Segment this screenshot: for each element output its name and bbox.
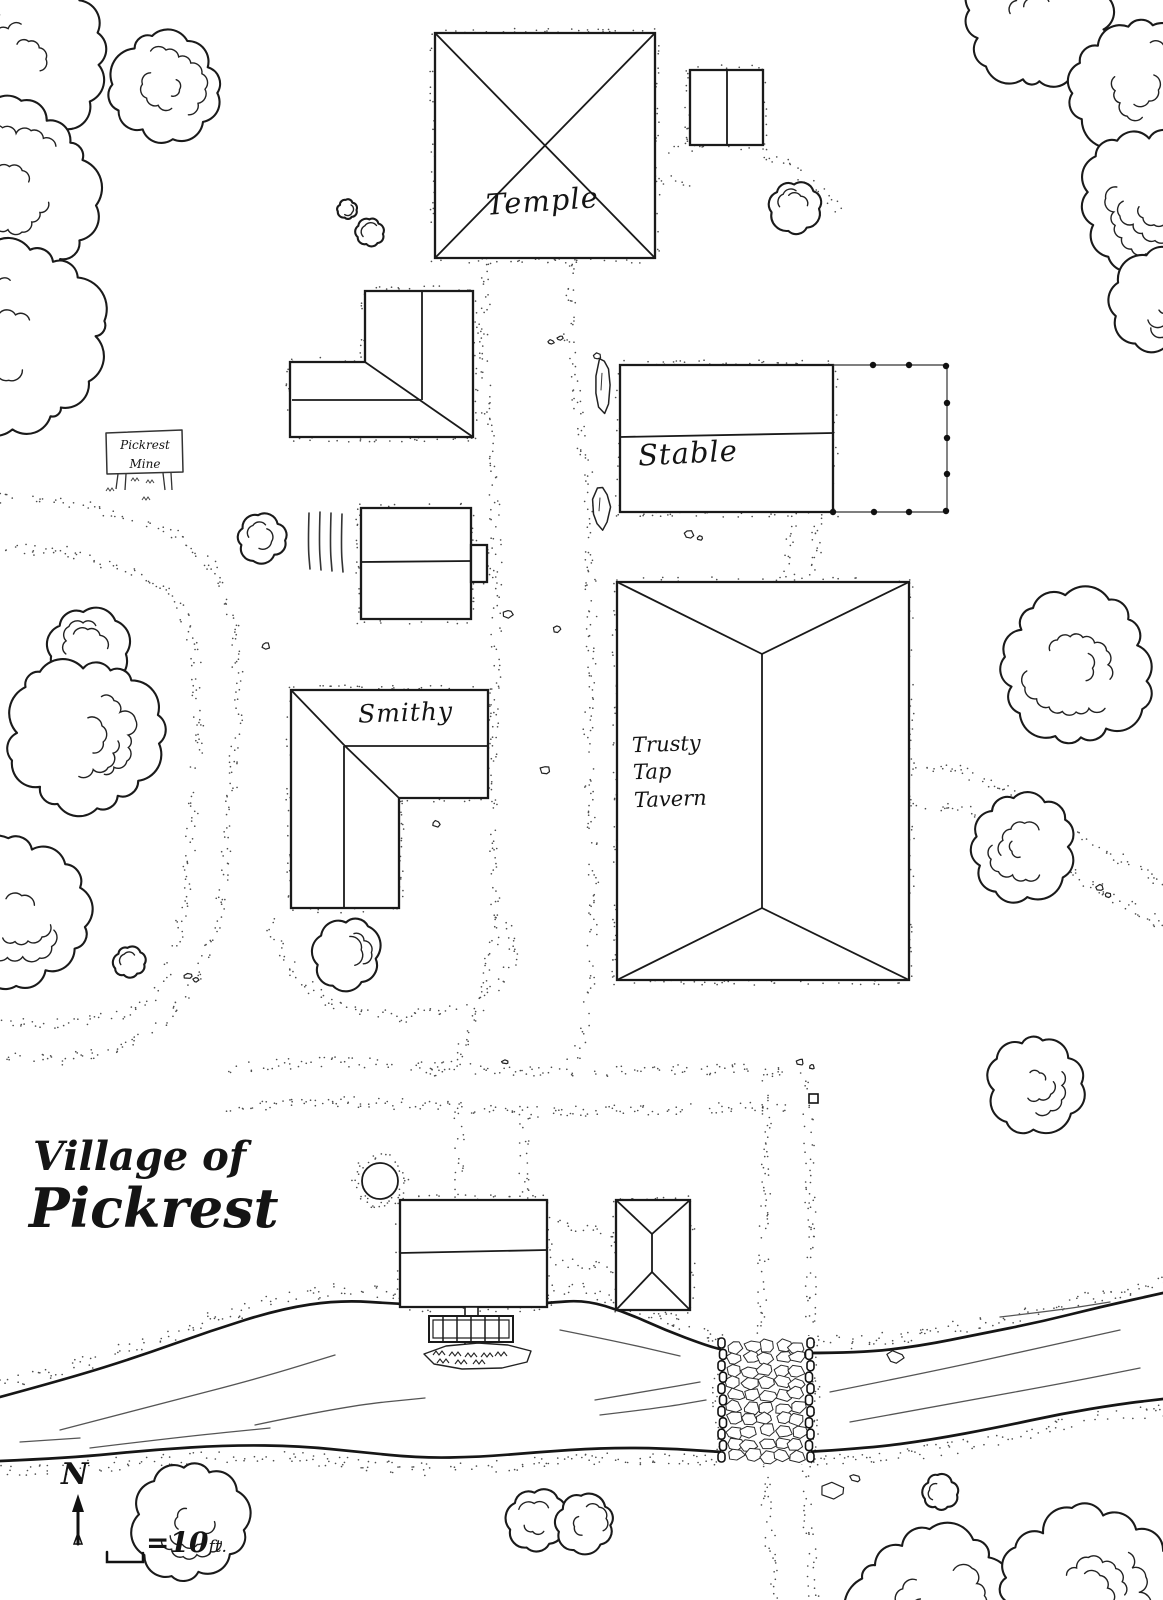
building-mill — [400, 1200, 547, 1307]
fence-post — [944, 435, 950, 441]
stable-fence — [830, 362, 950, 515]
mine-sign-line1: Pickrest — [120, 438, 170, 452]
dirt-path-stipple — [801, 1073, 817, 1336]
building-house-northwest — [290, 291, 473, 437]
dirt-path-stipple — [519, 1107, 530, 1198]
dirt-path-stipple — [757, 1069, 772, 1340]
bridge-chain-link — [807, 1452, 814, 1462]
scale-unit: ft. — [208, 1537, 227, 1557]
grass-tuft — [106, 488, 114, 491]
building-river-house — [616, 1200, 690, 1310]
rock — [810, 1065, 815, 1069]
water-splash — [424, 1343, 531, 1369]
sign-leg — [171, 473, 172, 490]
building-house-middle-walls — [361, 508, 471, 619]
bridge-chain-link — [807, 1429, 814, 1439]
building-mill-walls — [400, 1200, 547, 1307]
map-title-line2: Pickrest — [29, 1181, 279, 1235]
river-current-line — [595, 1382, 700, 1400]
river-bank-stipple — [801, 1277, 1163, 1348]
bridge-chain-link — [718, 1338, 725, 1348]
river-bank-stipple — [809, 1405, 1163, 1466]
river-bank-line — [0, 1301, 723, 1397]
rock — [850, 1475, 860, 1482]
building-house-middle — [361, 508, 471, 619]
bridge-chain-link — [720, 1441, 727, 1451]
bridge-chain-link — [806, 1349, 813, 1359]
map-scale — [107, 1552, 143, 1562]
river-current-line — [600, 1400, 706, 1415]
wheel-axle — [465, 1307, 478, 1316]
bridge-chain-link — [720, 1395, 727, 1405]
tree-canopy — [131, 1463, 250, 1581]
north-arrow-head — [72, 1494, 84, 1512]
stone-bridge — [718, 1336, 814, 1464]
map-canvas — [0, 0, 1163, 1600]
bridge-chain-link — [718, 1384, 725, 1394]
bridge-cobblestone — [760, 1339, 773, 1352]
tree-canopy — [113, 946, 146, 977]
tree-canopy — [238, 513, 287, 563]
building-house-northwest-walls — [290, 291, 473, 437]
building-temple — [435, 33, 655, 258]
label-tavern-line2: Tap — [633, 757, 707, 787]
dirt-path-stipple — [267, 919, 517, 1022]
river-current-line — [60, 1355, 335, 1430]
rock — [262, 643, 269, 649]
bridge-chain-link — [720, 1349, 727, 1359]
building-river-house-walls — [616, 1200, 690, 1310]
bridge-cobblestone — [760, 1439, 777, 1449]
rock — [1105, 893, 1110, 898]
rock — [796, 1059, 803, 1065]
garden-rows — [309, 512, 344, 572]
tree-canopy — [312, 919, 381, 992]
bridge-chain-link — [720, 1418, 727, 1428]
label-smithy: Smithy — [358, 696, 454, 728]
river-current-line — [560, 1330, 680, 1356]
bridge-chain-link — [807, 1338, 814, 1348]
dirt-path-stipple — [564, 264, 599, 1059]
tree-canopy — [844, 1523, 1011, 1600]
river-bank-line — [806, 1399, 1163, 1452]
bridge-chain-link — [806, 1372, 813, 1382]
garden-row-line — [342, 514, 344, 572]
label-tavern: Trusty Tap Tavern — [632, 730, 708, 814]
river-current-line — [255, 1398, 425, 1425]
tree-canopy — [922, 1474, 958, 1510]
mine-sign-line2: Mine — [130, 457, 161, 471]
rock — [684, 531, 693, 538]
tree-canopy — [987, 1037, 1085, 1134]
standing-stones — [593, 359, 611, 530]
bridge-chain-link — [807, 1406, 814, 1416]
dirt-path-stipple — [802, 1464, 819, 1597]
bridge-chain-link — [807, 1384, 814, 1394]
fence-post — [944, 471, 950, 477]
fence-post — [906, 509, 912, 515]
dirt-path-stipple — [761, 1464, 777, 1598]
garden-row-line — [331, 513, 333, 571]
bridge-chain-link — [806, 1395, 813, 1405]
tree-canopy — [1000, 1503, 1163, 1600]
bridge-chain-link — [718, 1452, 725, 1462]
village-map: Temple Stable Smithy Trusty Tap Tavern P… — [0, 0, 1163, 1600]
building-house-middle-roofline — [361, 561, 471, 562]
fence-post — [871, 509, 877, 515]
river-current-line — [850, 1368, 1140, 1422]
garden-row-line — [320, 512, 322, 570]
tree-canopy — [108, 29, 220, 143]
bridge-chain-link — [807, 1361, 814, 1371]
building-house-middle-annex — [471, 545, 487, 582]
fence-post — [943, 508, 949, 514]
label-tavern-line3: Tavern — [633, 784, 707, 814]
sign-leg — [163, 473, 165, 490]
compass-north-label: N — [61, 1457, 88, 1492]
standing-stone — [596, 359, 610, 414]
grass-tuft — [146, 480, 154, 483]
dirt-path-stipple — [454, 1112, 464, 1200]
square-marker — [809, 1094, 818, 1103]
tree-canopy — [0, 835, 93, 989]
tree-canopy — [555, 1494, 613, 1555]
river-current-line — [20, 1438, 80, 1442]
scale-bar — [107, 1552, 143, 1562]
bridge-chain-link — [718, 1429, 725, 1439]
label-stable: Stable — [637, 433, 738, 472]
map-title-line1: Village of — [33, 1137, 279, 1177]
rock — [548, 340, 554, 344]
river-current-line — [830, 1330, 1120, 1392]
fence-post — [906, 362, 912, 368]
tree-canopy — [1000, 586, 1151, 743]
sign-leg — [116, 474, 118, 489]
scale-label: =10ft. — [146, 1526, 227, 1559]
round-yard-feature — [362, 1163, 398, 1199]
rock — [697, 536, 702, 541]
rock — [593, 353, 600, 359]
map-title: Village of Pickrest — [33, 1137, 279, 1235]
dirt-path-stipple — [556, 1259, 611, 1272]
scale-value: =10 — [146, 1526, 208, 1559]
bridge-chain-link — [718, 1406, 725, 1416]
rock — [887, 1351, 904, 1364]
bridge-chain-link — [806, 1418, 813, 1428]
rock — [540, 767, 549, 774]
fence-post — [943, 363, 949, 369]
building-house-middle-annex-walls — [471, 545, 487, 582]
compass-north-arrow — [72, 1494, 84, 1544]
fence-post — [870, 362, 876, 368]
rock — [502, 1060, 508, 1064]
sign-leg — [125, 474, 126, 490]
garden-row-line — [309, 513, 311, 569]
rock — [184, 973, 192, 978]
building-shed — [690, 70, 763, 145]
tree-canopy — [0, 238, 107, 436]
label-mine-sign: Pickrest Mine — [106, 436, 184, 473]
grass-tuft — [142, 497, 150, 500]
dirt-path-stipple — [558, 1220, 612, 1236]
dirt-path-stipple — [654, 143, 692, 153]
rock — [503, 611, 513, 619]
river — [0, 1293, 1163, 1461]
rock — [553, 626, 560, 633]
rock — [193, 978, 199, 982]
mill-waterwheel — [424, 1307, 531, 1369]
dirt-path-stipple — [784, 508, 796, 580]
tree-canopy — [971, 792, 1074, 903]
bridge-chain-link — [806, 1441, 813, 1451]
bridge-cobblestone — [776, 1426, 793, 1437]
grass-tuft — [131, 478, 139, 481]
yard-circle — [362, 1163, 398, 1199]
label-tavern-line1: Trusty — [632, 730, 706, 760]
river-bank-line — [0, 1445, 722, 1461]
dirt-path-stipple — [227, 1097, 786, 1117]
rock — [822, 1482, 844, 1499]
tree-canopy — [7, 659, 166, 816]
dirt-path-stipple — [810, 509, 822, 575]
standing-stone — [593, 487, 611, 530]
bridge-chain-link — [718, 1361, 725, 1371]
fence-post — [944, 400, 950, 406]
river-bank-stipple — [0, 1284, 723, 1387]
rock — [433, 820, 440, 827]
fence-post — [830, 509, 836, 515]
rock — [557, 336, 563, 340]
rock — [1096, 884, 1103, 890]
bridge-chain-link — [720, 1372, 727, 1382]
